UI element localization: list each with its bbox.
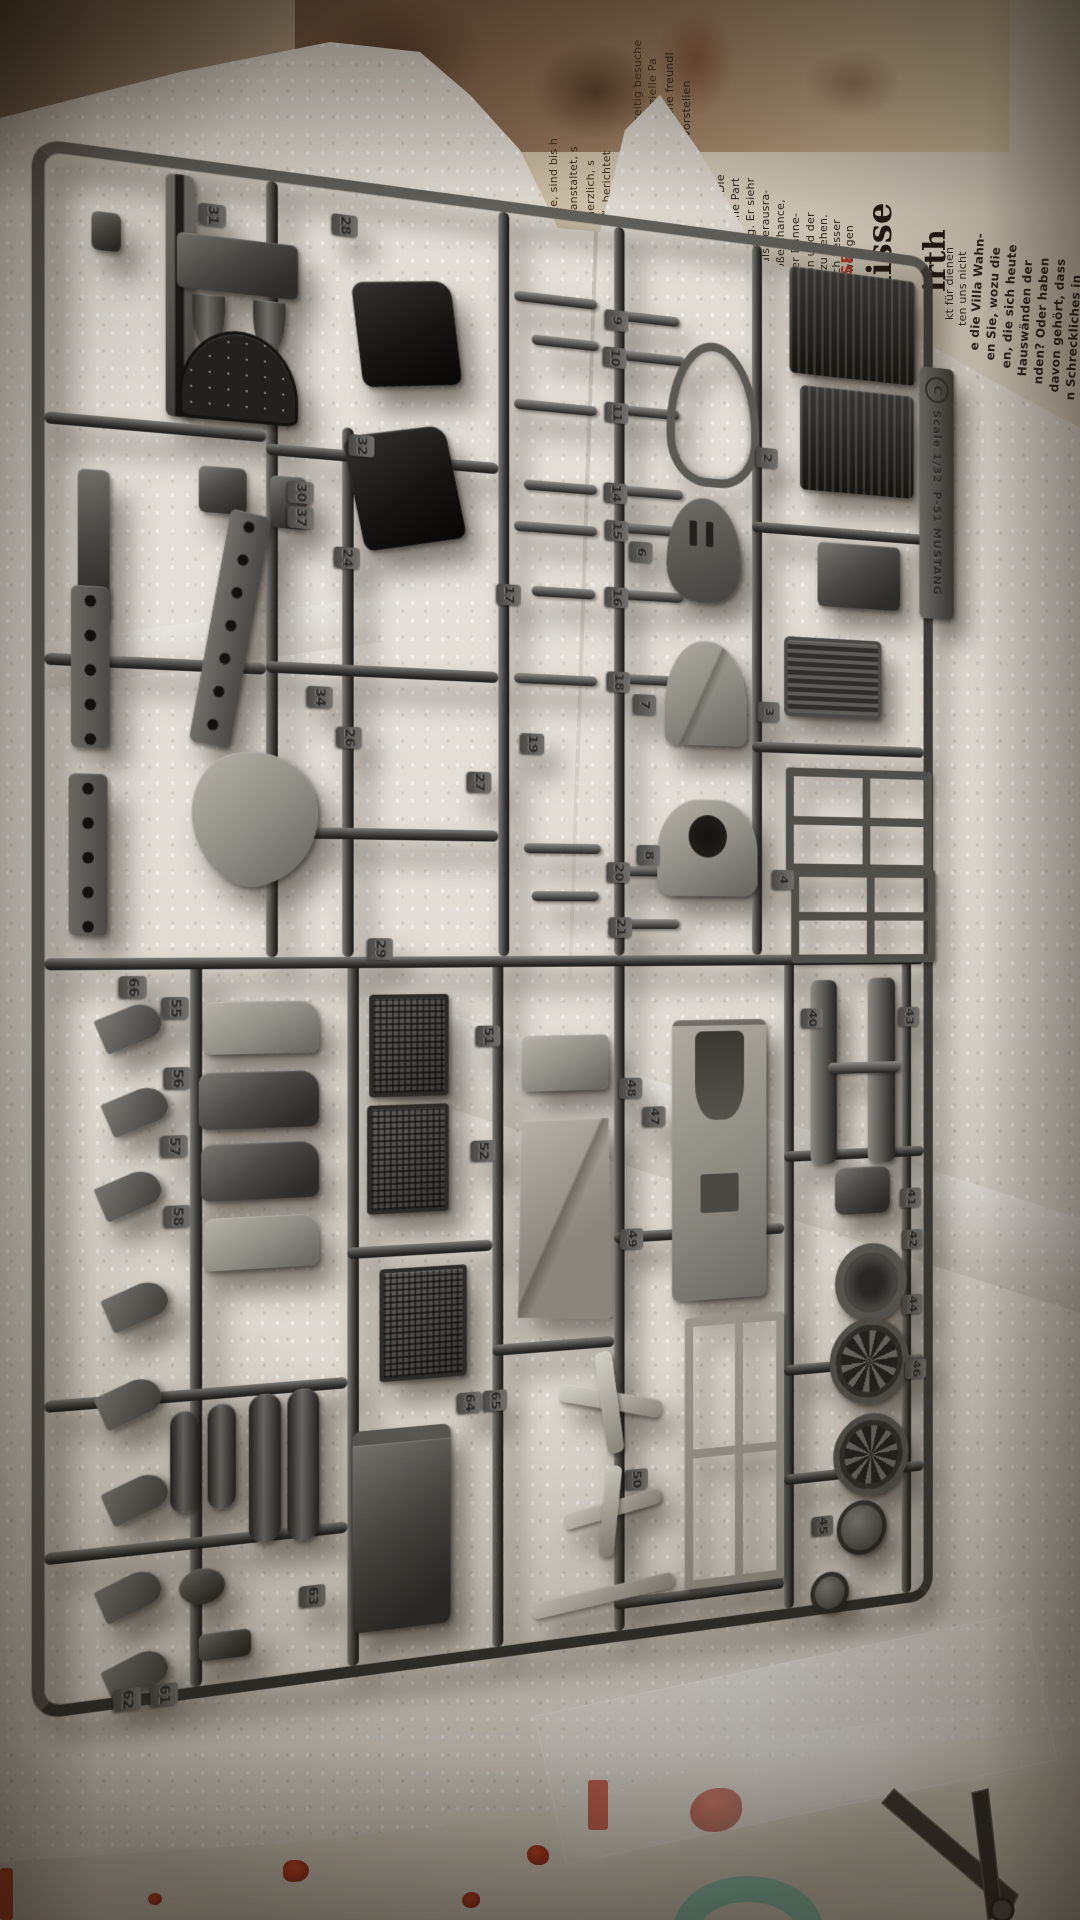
sprue-part-gear-brace (835, 1166, 890, 1216)
part-number-tag: 48 (619, 1078, 642, 1099)
sprue-part-door (522, 1034, 609, 1092)
scissors (620, 1745, 1080, 1920)
sprue-part-bottle (208, 1403, 236, 1511)
part-number-tag: 27 (467, 771, 492, 793)
part-number-tag: 31 (199, 202, 226, 228)
part-number-tag: 10 (603, 346, 627, 369)
sprue-part-seat-armor (657, 798, 757, 896)
part-number-tag: 40 (801, 1008, 823, 1028)
part-number-tag: 24 (334, 546, 360, 569)
scissors-pivot-screw (991, 1899, 1013, 1920)
sprue-part-engine-bearer (203, 1001, 319, 1055)
part-number-tag: 6 (629, 541, 652, 563)
sprue-part-engine-bearer (201, 1141, 319, 1203)
part-number-tag: 2 (756, 447, 778, 469)
part-number-tag: 63 (299, 1584, 325, 1609)
floor-tunnel (695, 1030, 744, 1121)
sprue-part-fuselage-frame (685, 1311, 784, 1590)
floor-hatch (701, 1172, 739, 1213)
part-number-tag: 66 (119, 976, 147, 999)
sprue-part (199, 465, 247, 515)
sprue-part-gear-door (518, 1118, 612, 1326)
red-stain (462, 1892, 480, 1908)
sprue-part-vented-panel (69, 773, 108, 936)
part-number-tag: 56 (163, 1067, 191, 1090)
part-number-tag: 49 (620, 1228, 643, 1250)
sprue-part-cross-brace (559, 1347, 663, 1459)
part-number-tag: 20 (607, 862, 631, 883)
part-number-tag: 41 (900, 1187, 921, 1208)
sprue-part-engine-bearer (203, 1213, 319, 1272)
part-number-tag: 17 (496, 584, 521, 607)
part-number-tag: 61 (150, 1682, 178, 1708)
sprue-gate-tab: C Scale 1/32 P-51 MUSTANG (919, 366, 953, 620)
gate-scale-text: Scale 1/32 (931, 410, 943, 485)
part-number-tag: 64 (457, 1391, 482, 1414)
newsprint-text-strip: ranstaltet, s (568, 146, 579, 215)
sprue-part-engine-block (789, 266, 915, 386)
part-number-tag: 62 (113, 1687, 141, 1713)
newsprint-text-strip: herzlich, s (585, 160, 596, 218)
scissors-handle-ring (686, 1889, 810, 1920)
part-number-tag: 16 (605, 586, 629, 608)
part-number-tag: 4 (772, 870, 794, 890)
sprue-part (91, 210, 120, 252)
part-number-tag: 46 (905, 1358, 926, 1379)
sprue-part-rod (524, 843, 601, 854)
part-number-tag: 30 (287, 481, 313, 505)
sprue-part-bottle (287, 1387, 319, 1542)
sprue-part-radiator-mesh (380, 1264, 467, 1382)
sprue-part-carburetor (818, 542, 900, 611)
gate-letter-badge: C (925, 376, 948, 404)
part-number-tag: 7 (633, 694, 656, 716)
part-number-tag: 8 (637, 845, 660, 866)
part-number-tag: 14 (604, 482, 628, 505)
part-number-tag: 37 (287, 506, 313, 530)
part-number-tag: 42 (902, 1229, 923, 1250)
part-number-tag: 32 (348, 434, 374, 458)
part-number-tag: 9 (605, 309, 629, 332)
model-kit-sprue: 3128323037243426271991011141516176187238… (32, 138, 933, 1721)
sprue-part-radiator-mesh (369, 994, 448, 1098)
part-number-tag: 15 (605, 520, 629, 542)
part-number-tag: 34 (307, 686, 333, 709)
sprue-part-engine-mount-frame (791, 868, 935, 963)
part-number-tag: 19 (520, 733, 544, 755)
part-number-tag: 43 (898, 1007, 919, 1027)
sprue-part-bottle (249, 1393, 281, 1545)
sprue-part-bottle (170, 1410, 199, 1515)
sprue-part-rod (532, 891, 599, 901)
sprue-rail (784, 955, 794, 1609)
sprue-part-engine-mount-frame (786, 767, 932, 873)
sprue-part-battery-box (353, 1423, 451, 1634)
bulkhead-slot (706, 521, 713, 547)
sprue-part-radiator (784, 636, 881, 720)
sprue-part-engine-bearer (199, 1070, 319, 1130)
part-number-tag: 45 (811, 1515, 833, 1537)
newsprint-text-strip: ten uns nicht (957, 251, 968, 326)
part-number-tag: 29 (367, 938, 393, 960)
newspaper-red-edge (0, 1868, 13, 1920)
photo-scene: je, sind bis hranstaltet, sherzlich, sn“… (0, 0, 1080, 1920)
red-stain (527, 1845, 549, 1865)
sprue-part-vented-panel (71, 585, 110, 749)
part-number-tag: 55 (161, 997, 189, 1020)
part-number-tag: 57 (160, 1135, 188, 1158)
part-number-tag: 11 (605, 401, 629, 424)
part-number-tag: 51 (476, 1025, 501, 1047)
part-number-tag: 3 (757, 701, 779, 722)
gate-model-text: P-51 MUSTANG (931, 491, 943, 596)
part-number-tag: 44 (902, 1294, 923, 1315)
sprue-rail (492, 956, 503, 1647)
part-number-tag: 52 (471, 1140, 496, 1162)
red-stain (148, 1893, 162, 1905)
part-number-tag: 28 (332, 213, 358, 238)
part-number-tag: 18 (607, 671, 631, 693)
sprue-part-seat (351, 281, 463, 387)
part-number-tag: 26 (336, 726, 362, 749)
armor-oval-hole (689, 815, 727, 858)
sprue-part-rod (828, 1061, 900, 1074)
sprue-part-engine-block (800, 385, 914, 499)
newsprint-text-strip: je, sind bis h (548, 138, 559, 210)
part-number-tag: 65 (483, 1389, 508, 1412)
newsprint-text-strip: seitig besuche (632, 40, 643, 122)
bulkhead-slot (689, 520, 696, 546)
part-number-tag: 47 (642, 1106, 665, 1127)
part-number-tag: 50 (625, 1468, 648, 1491)
part-number-tag: 58 (163, 1205, 191, 1229)
part-number-tag: 21 (608, 917, 632, 938)
sprue-part-cockpit-floor (672, 1019, 766, 1302)
sprue-rail (342, 427, 353, 957)
sprue-part-radiator-mesh (367, 1103, 449, 1215)
